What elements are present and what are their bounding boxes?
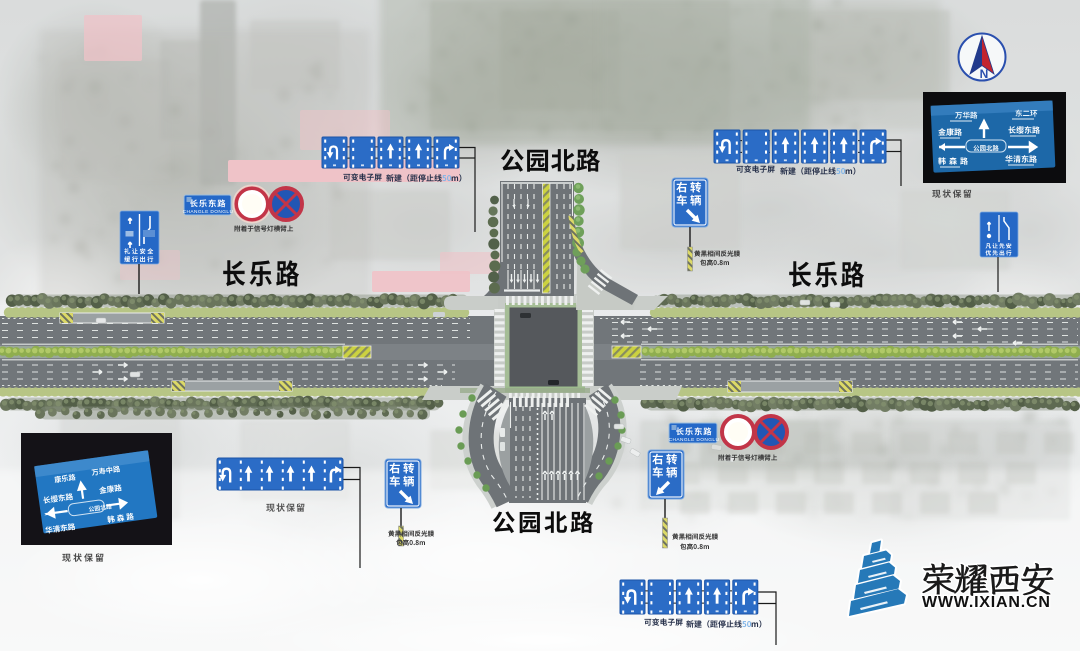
- svg-text:N: N: [980, 67, 989, 81]
- svg-text:WWW.IXIAN.CN: WWW.IXIAN.CN: [922, 594, 1051, 611]
- svg-text:CHANGLE DONGLU: CHANGLE DONGLU: [183, 209, 234, 215]
- svg-text:CHANGLE DONGLU: CHANGLE DONGLU: [669, 437, 720, 443]
